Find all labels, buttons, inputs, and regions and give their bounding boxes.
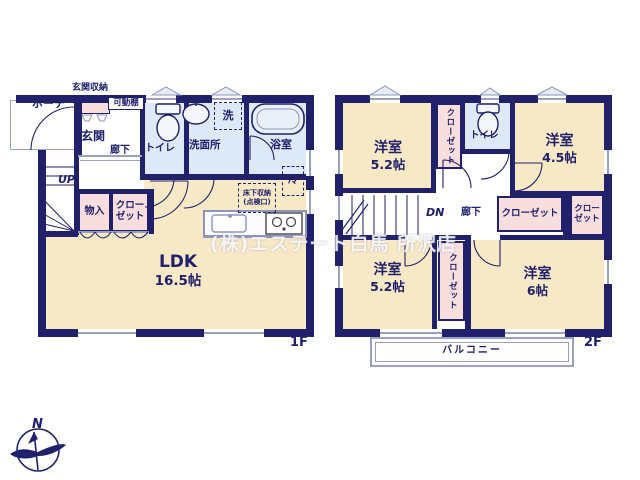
washroom-label: 洗面所 [189,139,221,151]
toilet1-floor [144,100,186,176]
entrance-step-line [80,160,140,161]
window [505,329,565,337]
balcony-label: バルコニー [370,345,574,357]
window [380,329,442,337]
room-se-size: 6帖 [471,284,604,298]
wall [149,189,154,234]
toilet1-label: トイレ [145,143,175,155]
window [335,266,343,288]
room-ne-name: 洋室 [515,133,604,149]
stairs-dn-label: DN [426,207,444,220]
bathroom-label: 浴室 [270,139,292,152]
toilet2-label: トイレ [470,131,499,142]
laundry-label: 洗 [214,102,242,130]
compass-north-label: N [32,418,43,433]
room-sw-size: 5.2帖 [343,280,432,294]
hallway2-label: 廊下 [461,207,481,219]
wall [74,95,82,157]
vent-triangles [152,86,567,95]
window [604,260,612,284]
window [78,329,136,337]
wall [461,149,511,154]
wall [335,329,612,337]
window [481,95,499,103]
window [370,95,400,103]
wall [563,194,570,236]
window [538,95,566,103]
window [335,150,343,174]
fridge-label: 冷 [282,166,304,196]
stairs-up-label: UP [58,174,75,187]
compass-icon [10,429,66,471]
wall [343,188,436,193]
entrance-storage-label: 玄関収納 [72,83,108,93]
hallway1-label: 廊下 [110,145,130,157]
closet1-label: クローゼット [112,192,148,232]
wall [38,231,78,237]
toilet2-floor [465,103,510,151]
window [306,150,314,176]
window [306,190,314,214]
room-se-name: 洋室 [471,266,604,282]
room-ne-size: 4.5帖 [515,151,604,165]
porch-label: ポーチ [32,98,65,111]
window [146,95,176,103]
entrance-label: 玄関 [81,130,105,144]
floor-plan-canvas: ポーチ 玄関収納 可動棚 玄関 廊下 トイレ 洗 洗面所 浴室 UP 物入 クロ… [0,0,640,480]
underfloor-label: 床下収納(点検口) [239,184,275,212]
watermark: (株)エステート白馬 所沢店 [210,229,457,256]
wall [306,95,314,337]
floor2-label: 2F [584,336,602,351]
closet-mid-e-label: クローゼット [571,194,603,236]
wall [140,98,145,178]
window [604,150,612,174]
hall1-floor [78,157,144,193]
floor1-label: 1F [290,336,308,351]
room-nw-size: 5.2帖 [343,158,433,172]
ldk-size: 16.5帖 [118,274,238,290]
wall [244,98,249,178]
room-nw-name: 洋室 [343,140,433,156]
window [335,196,343,220]
movable-shelf-label: 可動棚 [108,97,144,110]
wall [38,150,46,337]
closet-n-label: クローゼット [436,104,462,168]
window [204,329,264,337]
wall [604,95,612,337]
wall [184,98,189,178]
wall [510,103,515,196]
room-sw-name: 洋室 [343,262,432,278]
storage1-label: 物入 [78,192,111,232]
closet-mid-w-label: クローゼット [497,196,563,232]
